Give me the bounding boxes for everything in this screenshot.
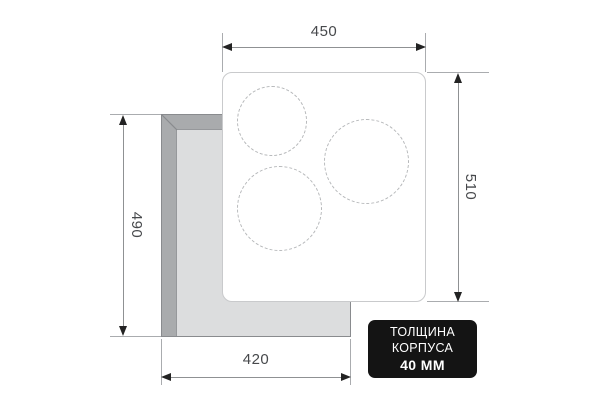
dim-490-line [123, 125, 124, 326]
dim-490-arrow-down-icon [119, 326, 127, 336]
diagram-canvas: 450 510 490 420 ТОЛЩИНА КОРПУСА 40 ММ [0, 0, 600, 420]
dim-450-ext-left [222, 33, 223, 72]
cutout-bevel-line [161, 114, 178, 131]
dim-490-label: 490 [127, 195, 147, 255]
dim-510-label: 510 [461, 157, 481, 217]
dim-510-arrow-down-icon [454, 292, 462, 302]
thickness-badge: ТОЛЩИНА КОРПУСА 40 ММ [368, 320, 477, 378]
dim-450-line [232, 47, 416, 48]
badge-line-1: ТОЛЩИНА [390, 324, 455, 340]
badge-line-2: КОРПУСА [392, 340, 453, 356]
dim-490-ext-bottom [110, 336, 161, 337]
dim-510-line [458, 83, 459, 292]
dim-450-label: 450 [294, 21, 354, 41]
dim-420-arrow-right-icon [341, 373, 351, 381]
burner-zone-right [324, 119, 409, 204]
dim-510-arrow-up-icon [454, 73, 462, 83]
badge-line-3: 40 ММ [400, 356, 445, 374]
dim-420-arrow-left-icon [161, 373, 171, 381]
cooktop-panel [222, 72, 426, 302]
dim-490-ext-top [110, 114, 161, 115]
dim-450-arrow-left-icon [222, 43, 232, 51]
burner-zone-bottom-left [237, 166, 322, 251]
dim-450-ext-right [425, 33, 426, 72]
dim-420-line [171, 377, 341, 378]
dim-490-arrow-up-icon [119, 115, 127, 125]
burner-zone-top-left [237, 86, 307, 156]
dim-420-label: 420 [226, 349, 286, 369]
dim-450-arrow-right-icon [416, 43, 426, 51]
